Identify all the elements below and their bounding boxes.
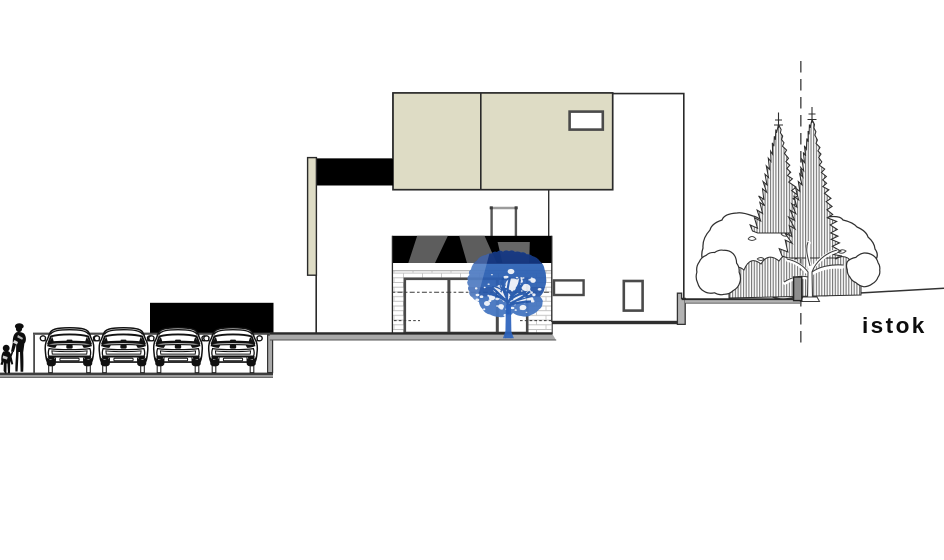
svg-text:istok: istok xyxy=(862,313,927,338)
